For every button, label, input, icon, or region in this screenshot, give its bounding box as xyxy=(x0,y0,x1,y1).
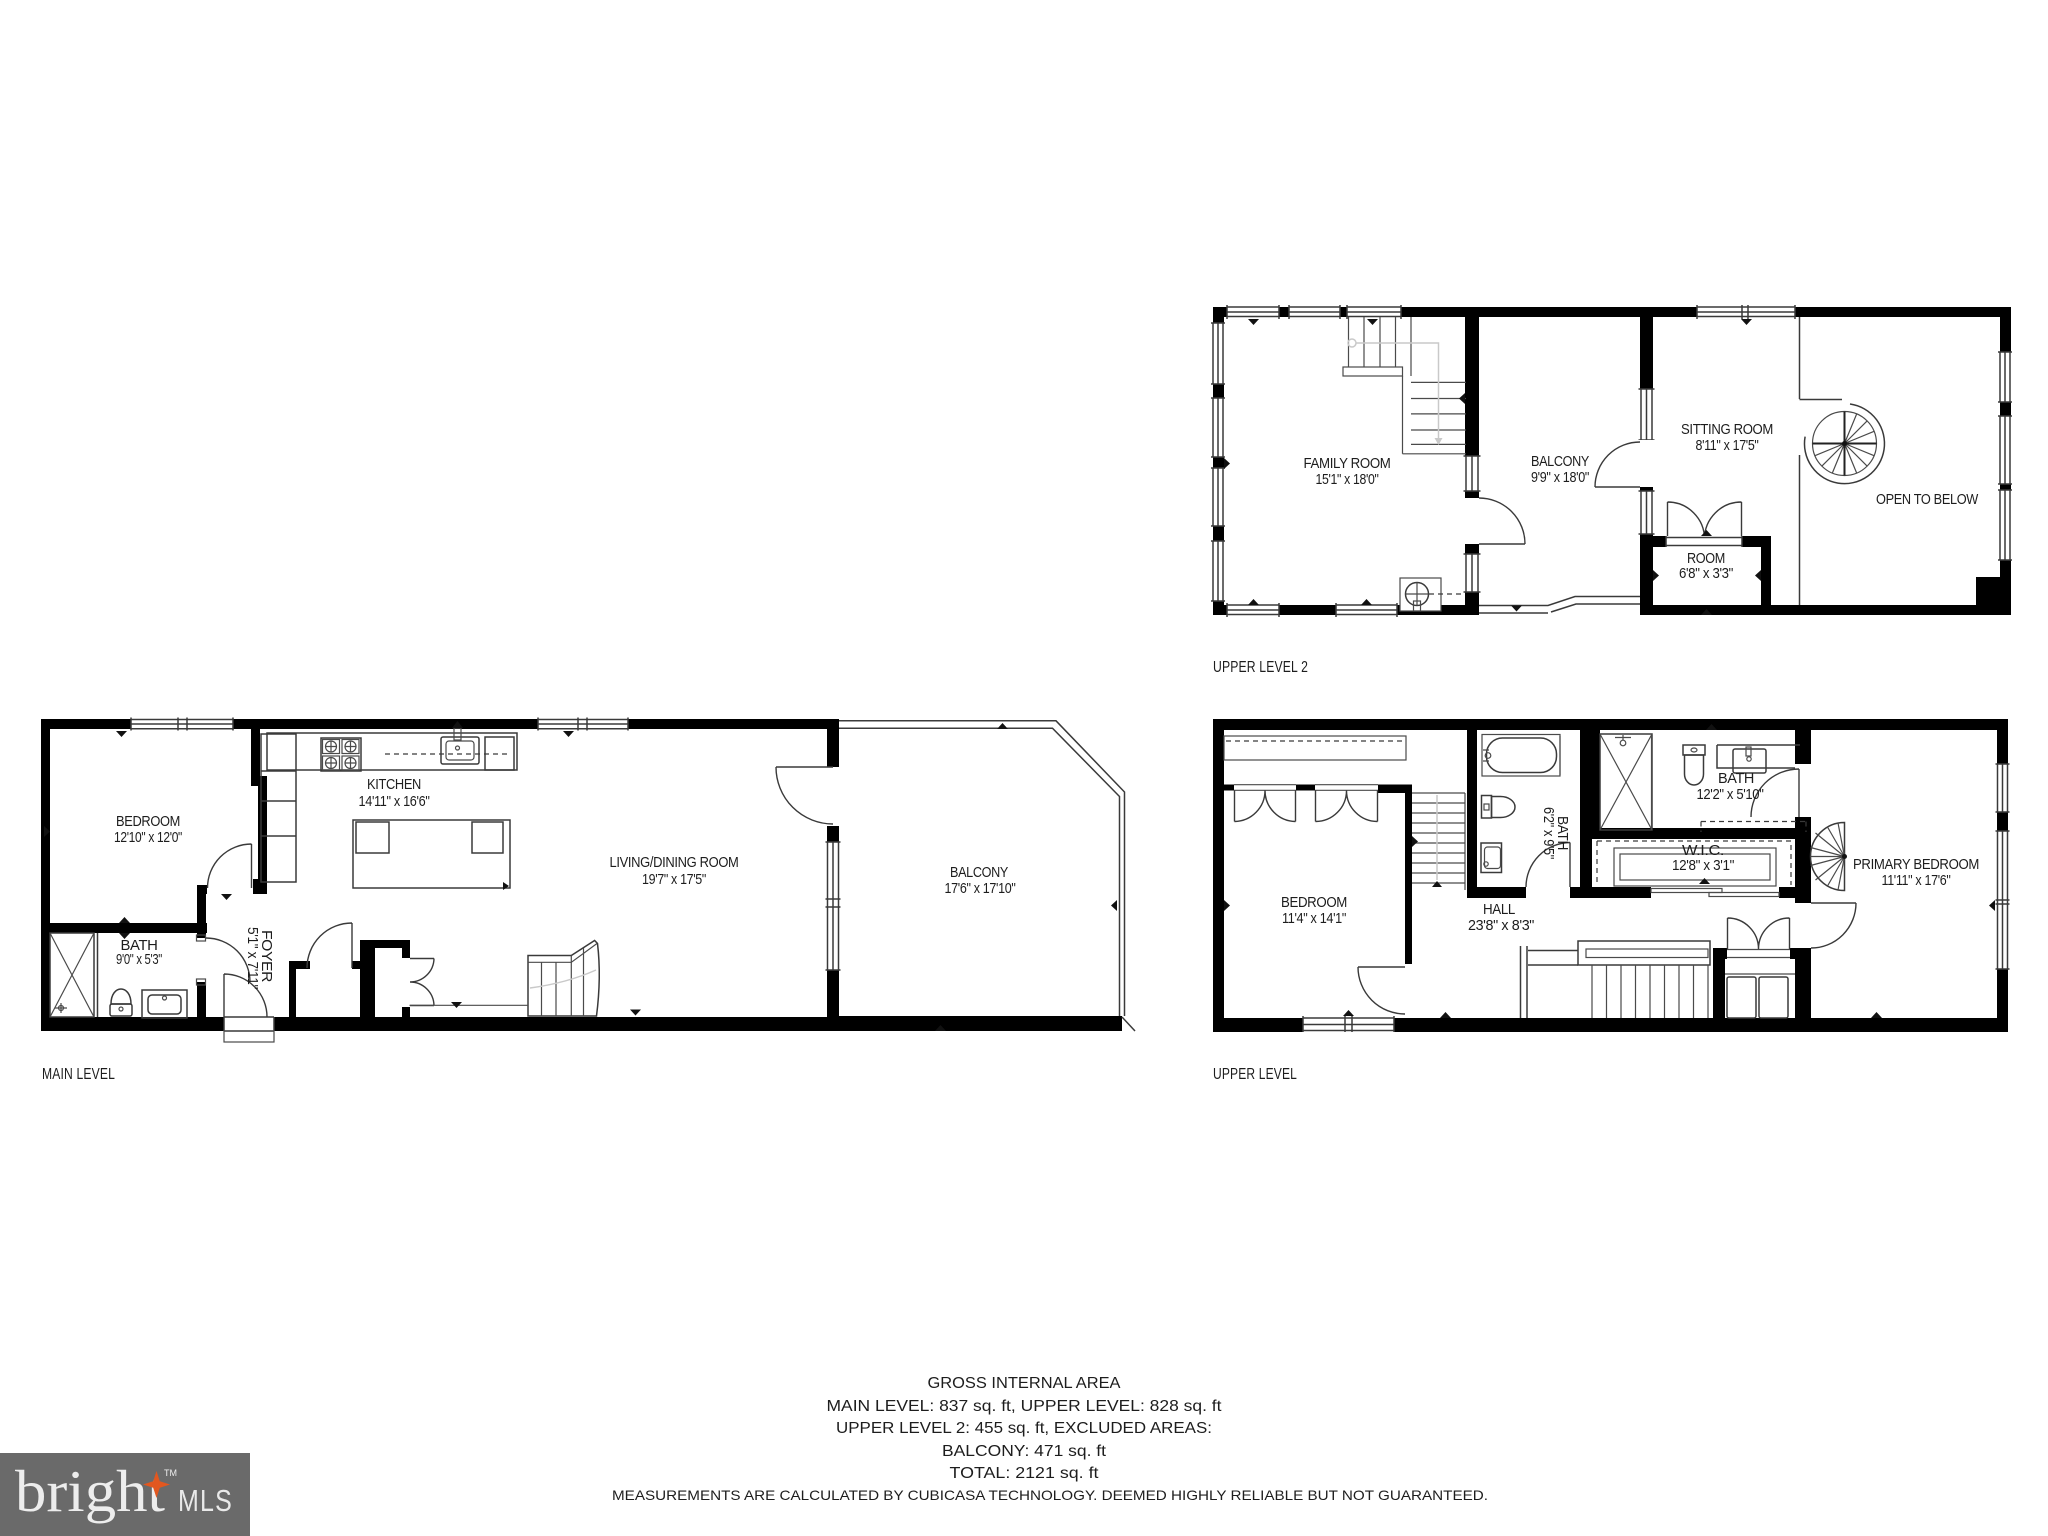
svg-text:5'1" x 7'11": 5'1" x 7'11" xyxy=(244,927,261,989)
svg-text:MAIN LEVEL: MAIN LEVEL xyxy=(42,1066,115,1083)
svg-text:BALCONY: BALCONY xyxy=(950,864,1008,881)
svg-text:FAMILY ROOM: FAMILY ROOM xyxy=(1304,455,1391,472)
svg-text:15'1" x 18'0": 15'1" x 18'0" xyxy=(1316,471,1379,488)
svg-text:11'4" x 14'1": 11'4" x 14'1" xyxy=(1282,910,1346,927)
svg-text:LIVING/DINING ROOM: LIVING/DINING ROOM xyxy=(610,854,739,871)
svg-text:BATH: BATH xyxy=(1718,770,1754,787)
svg-text:MEASUREMENTS ARE CALCULATED BY: MEASUREMENTS ARE CALCULATED BY CUBICASA … xyxy=(612,1488,1488,1503)
svg-text:MAIN LEVEL: 837 sq. ft, UPPER: MAIN LEVEL: 837 sq. ft, UPPER LEVEL: 828… xyxy=(827,1398,1223,1415)
svg-text:GROSS INTERNAL AREA: GROSS INTERNAL AREA xyxy=(928,1375,1121,1392)
svg-text:12'8" x 3'1": 12'8" x 3'1" xyxy=(1672,857,1734,874)
svg-text:12'10" x 12'0": 12'10" x 12'0" xyxy=(114,829,182,846)
svg-text:TM: TM xyxy=(164,1468,177,1478)
svg-text:11'11" x 17'6": 11'11" x 17'6" xyxy=(1882,872,1951,889)
svg-text:6'2" x 9'5": 6'2" x 9'5" xyxy=(1540,807,1557,859)
svg-text:MLS: MLS xyxy=(178,1483,233,1518)
svg-text:9'0" x 5'3": 9'0" x 5'3" xyxy=(116,951,162,968)
svg-text:UPPER LEVEL 2: UPPER LEVEL 2 xyxy=(1213,659,1308,676)
svg-text:12'2" x 5'10": 12'2" x 5'10" xyxy=(1697,786,1764,803)
svg-text:9'9" x 18'0": 9'9" x 18'0" xyxy=(1531,469,1589,486)
svg-text:BEDROOM: BEDROOM xyxy=(116,813,180,830)
svg-text:TOTAL: 2121 sq. ft: TOTAL: 2121 sq. ft xyxy=(950,1465,1100,1482)
svg-text:SITTING ROOM: SITTING ROOM xyxy=(1681,421,1773,438)
svg-text:UPPER LEVEL: UPPER LEVEL xyxy=(1213,1066,1297,1083)
svg-text:bright: bright xyxy=(15,1458,166,1524)
svg-text:KITCHEN: KITCHEN xyxy=(367,776,421,793)
svg-text:19'7" x 17'5": 19'7" x 17'5" xyxy=(642,871,706,888)
svg-text:14'11" x 16'6": 14'11" x 16'6" xyxy=(359,793,430,810)
svg-text:BALCONY: 471 sq. ft: BALCONY: 471 sq. ft xyxy=(942,1443,1107,1460)
svg-text:OPEN TO BELOW: OPEN TO BELOW xyxy=(1876,491,1979,508)
svg-text:17'6" x 17'10": 17'6" x 17'10" xyxy=(945,880,1016,897)
svg-text:BEDROOM: BEDROOM xyxy=(1281,894,1347,911)
svg-text:23'8" x 8'3": 23'8" x 8'3" xyxy=(1468,917,1534,934)
svg-text:HALL: HALL xyxy=(1483,901,1515,918)
svg-text:BALCONY: BALCONY xyxy=(1531,453,1589,470)
svg-text:6'8" x 3'3": 6'8" x 3'3" xyxy=(1679,565,1733,582)
svg-text:UPPER LEVEL 2: 455 sq. ft, EXC: UPPER LEVEL 2: 455 sq. ft, EXCLUDED AREA… xyxy=(836,1420,1212,1437)
svg-text:8'11" x 17'5": 8'11" x 17'5" xyxy=(1696,437,1759,454)
svg-text:PRIMARY BEDROOM: PRIMARY BEDROOM xyxy=(1853,856,1979,873)
